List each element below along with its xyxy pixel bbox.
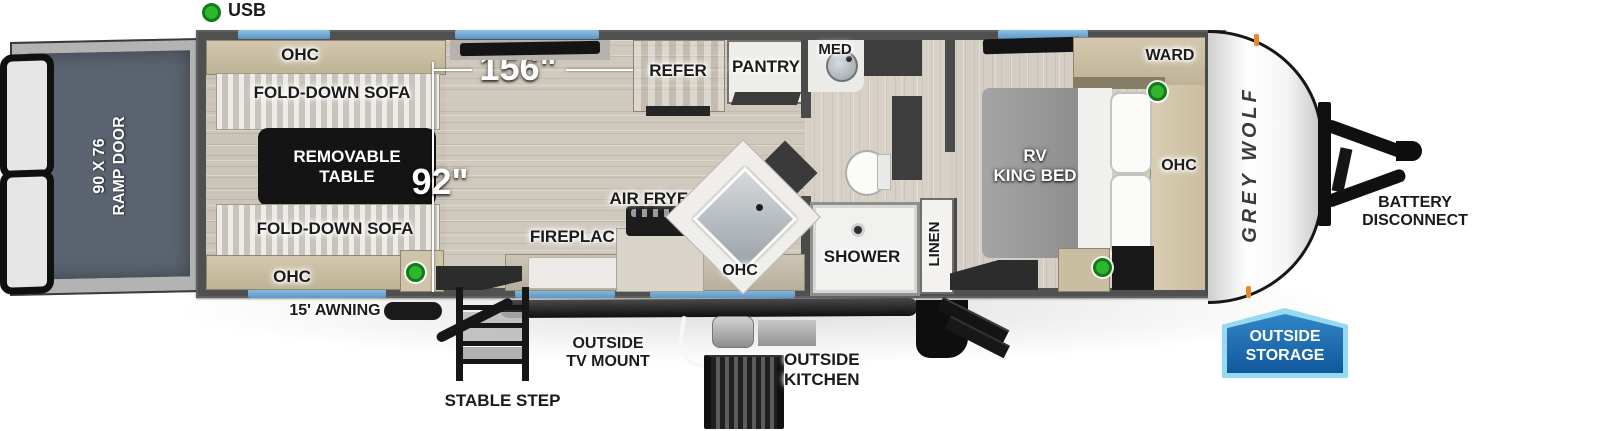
battery-label-2: DISCONNECT [1362, 212, 1468, 229]
linen-label: LINEN [927, 222, 943, 267]
water-heater-cylinder [712, 316, 754, 348]
bedroom-ohc-label: OHC [1152, 158, 1206, 175]
usb-indicator-icon [202, 3, 221, 22]
garage-width-dim: 92" [398, 164, 482, 200]
shower-drain [854, 226, 862, 234]
stable-step-rung-3 [458, 341, 528, 346]
utility-box [758, 320, 816, 346]
pantry-label: PANTRY [727, 58, 805, 76]
bath-wall-block-mid [892, 96, 922, 180]
living-tv [460, 41, 600, 56]
bed-pillow-top [1110, 92, 1152, 174]
ramp-size-label: 90 X 76 [91, 138, 108, 193]
ward-label: WARD [1140, 48, 1200, 65]
linen-label-wrap: LINEN [920, 214, 950, 274]
removable-table-label-1: REMOVABLE [293, 147, 400, 167]
marker-light-bottom [1246, 286, 1251, 298]
pantry-shelf [731, 92, 801, 105]
garage-ohc-bottom-label: OHC [252, 268, 332, 286]
battery-disconnect-label: BATTERY DISCONNECT [1340, 194, 1490, 231]
awning-arm [384, 302, 442, 320]
usb-indicator-bedroom-bottom [1093, 258, 1112, 277]
outside-tv-mount-label: OUTSIDE TV MOUNT [553, 335, 663, 372]
shower-label: SHOWER [810, 248, 914, 266]
window-top-garage [238, 30, 330, 39]
bedroom-dresser [1112, 246, 1154, 290]
floorplan-diagram: USB 90 X 76 RAMP DOOR OHC FOLD-DOWN SOFA… [0, 0, 1600, 431]
window-bottom-garage [248, 289, 386, 298]
kitchen-faucet [756, 204, 763, 211]
outside-kitchen-label-2: KITCHEN [784, 370, 860, 389]
bed-sheet [1078, 88, 1112, 258]
garage-length-line-a [434, 69, 472, 71]
outside-kitchen-label: OUTSIDE KITCHEN [784, 350, 879, 391]
awning-tube [500, 298, 918, 318]
toilet-tank [877, 154, 891, 190]
stable-step-rung-4 [458, 359, 528, 364]
removable-table-label-2: TABLE [319, 167, 374, 187]
grey-wolf-logo-text: GREY WOLF [1239, 86, 1262, 243]
awning-label: 15' AWNING [270, 303, 400, 320]
ramp-door-text: RAMP DOOR [111, 116, 128, 215]
grey-wolf-logo: GREY WOLF [1228, 60, 1272, 268]
bedroom-ohc-cabinet [1150, 85, 1208, 290]
bedroom-tv [983, 37, 1081, 55]
stable-step-rail-right [522, 287, 529, 381]
fold-down-sofa-top-label: FOLD-DOWN SOFA [232, 84, 432, 102]
storage-label-2: STORAGE [1246, 347, 1325, 365]
usb-indicator-bedroom-top [1148, 82, 1167, 101]
marker-light-top [1254, 34, 1259, 46]
ramp-door-label: 90 X 76 RAMP DOOR [10, 91, 210, 241]
garage-length-line-b [566, 69, 634, 71]
garage-ohc-top-label: OHC [260, 46, 340, 64]
kitchen-ohc-label: OHC [700, 263, 780, 280]
bath-wall-block-top [864, 40, 922, 76]
tv-mount-label-1: OUTSIDE [572, 335, 643, 352]
refrigerator-base [646, 106, 710, 116]
med-label: MED [800, 42, 870, 58]
battery-label-1: BATTERY [1378, 194, 1452, 211]
outside-kitchen-grill [704, 355, 784, 429]
bedroom-wall-top [945, 40, 955, 152]
window-top-living [455, 30, 599, 39]
hitch-arm-top [1324, 118, 1407, 159]
tv-mount-label-2: TV MOUNT [566, 353, 650, 370]
rv-king-bed-label: RV KING BED [990, 146, 1080, 187]
stable-step-label: STABLE STEP [440, 392, 565, 410]
bed-label-1: RV [1023, 146, 1046, 165]
outside-kitchen-label-1: OUTSIDE [784, 350, 860, 369]
fold-down-sofa-bottom-label: FOLD-DOWN SOFA [235, 220, 435, 238]
storage-label-1: OUTSIDE [1249, 328, 1320, 346]
usb-legend-label: USB [228, 1, 266, 20]
refer-label: REFER [638, 62, 718, 80]
bed-label-2: KING BED [993, 166, 1076, 185]
usb-indicator-garage [406, 263, 425, 282]
bed-pillow-bottom [1110, 174, 1152, 256]
hitch-coupler [1396, 141, 1422, 161]
